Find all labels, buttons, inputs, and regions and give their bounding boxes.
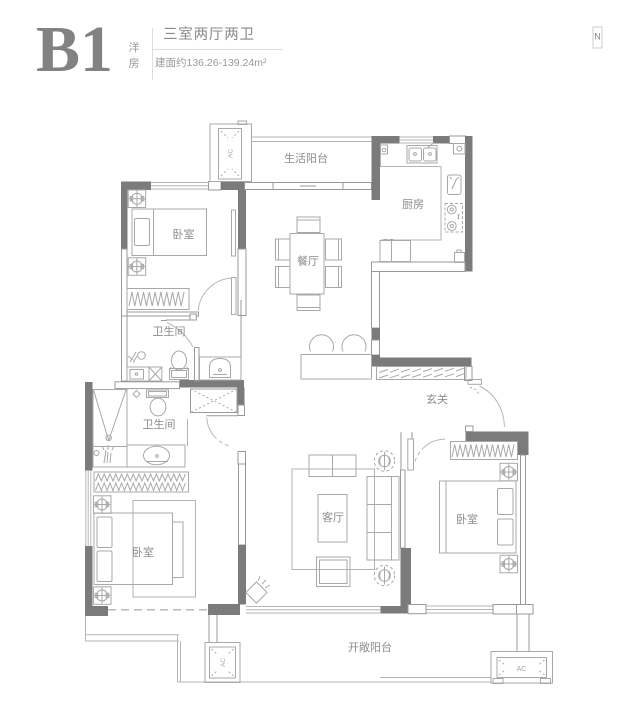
svg-text:B1: B1 <box>36 13 113 86</box>
svg-text:餐厅: 餐厅 <box>297 254 319 268</box>
svg-text:厨房: 厨房 <box>402 198 424 211</box>
svg-text:AC: AC <box>517 666 527 673</box>
svg-text:AC: AC <box>220 658 227 667</box>
svg-text:玄关: 玄关 <box>426 392 448 406</box>
svg-text:三室两厅两卫: 三室两厅两卫 <box>163 26 255 43</box>
svg-text:客厅: 客厅 <box>322 510 344 524</box>
svg-text:卧室: 卧室 <box>132 545 154 559</box>
svg-text:卧室: 卧室 <box>456 512 478 526</box>
svg-text:洋: 洋 <box>129 40 140 54</box>
svg-text:卫生间: 卫生间 <box>143 417 176 431</box>
svg-text:N: N <box>594 32 601 42</box>
svg-text:房: 房 <box>129 57 140 70</box>
svg-text:开敞阳台: 开敞阳台 <box>348 640 392 654</box>
svg-text:卫生间: 卫生间 <box>153 324 186 338</box>
svg-text:建面约136.26-139.24m²: 建面约136.26-139.24m² <box>155 56 267 69</box>
svg-text:卧室: 卧室 <box>173 227 195 241</box>
svg-text:AC: AC <box>228 149 235 158</box>
svg-text:生活阳台: 生活阳台 <box>284 151 328 165</box>
